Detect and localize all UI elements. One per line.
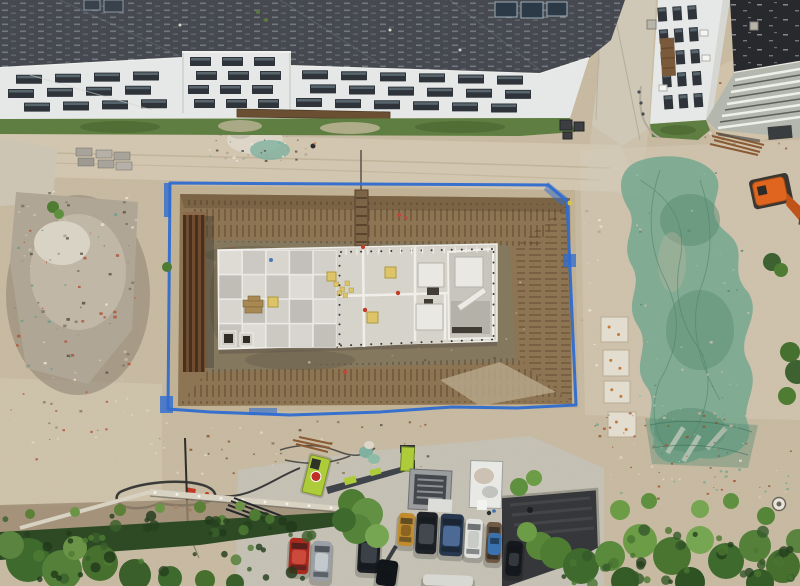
speckle — [24, 255, 26, 257]
speckle — [424, 424, 426, 426]
speckle — [99, 360, 100, 361]
speckle — [21, 205, 24, 208]
speckle — [722, 415, 724, 417]
speckle — [29, 230, 31, 232]
speckle — [123, 201, 126, 203]
speckle — [681, 315, 682, 316]
speckle — [759, 487, 760, 488]
tree-canopy — [774, 263, 788, 277]
speckle — [609, 427, 611, 429]
speckle — [592, 261, 594, 263]
speckle — [584, 223, 585, 224]
sheet-pile-shadow — [205, 216, 214, 368]
speckle — [79, 410, 82, 412]
speckle — [55, 410, 57, 412]
worker — [487, 511, 491, 515]
speckle — [788, 476, 790, 477]
speckle — [146, 410, 149, 412]
speckle — [420, 426, 421, 427]
speckle — [679, 478, 681, 480]
wall-post — [198, 495, 201, 498]
speckle — [265, 514, 275, 524]
speckle — [636, 225, 638, 227]
speckle — [582, 551, 593, 562]
speckle — [790, 451, 792, 453]
speckle — [753, 548, 758, 553]
speckle — [588, 309, 591, 311]
concrete-tile — [243, 251, 266, 275]
concrete-tile — [290, 275, 313, 299]
speckle — [43, 401, 46, 403]
speckle — [261, 547, 266, 552]
tree-canopy — [510, 478, 528, 496]
speckle — [74, 372, 76, 374]
speckle — [719, 82, 721, 84]
speckle — [31, 285, 34, 287]
speckle — [48, 423, 50, 425]
speckle — [190, 449, 193, 451]
speckle — [78, 286, 81, 288]
speckle — [226, 152, 229, 154]
speckle — [409, 421, 411, 423]
speckle — [86, 391, 88, 393]
speckle — [698, 412, 701, 414]
speckle — [392, 355, 394, 357]
tree-canopy — [332, 508, 356, 532]
speckle — [594, 344, 596, 345]
speckle — [451, 349, 453, 351]
speckle — [159, 438, 160, 439]
speckle — [41, 310, 45, 313]
speckle — [515, 312, 517, 314]
tree-canopy — [25, 509, 35, 519]
speckle — [662, 405, 664, 407]
speckle — [238, 525, 248, 535]
speckle — [785, 148, 787, 150]
speckle — [37, 577, 43, 583]
speckle — [715, 422, 718, 424]
concrete-tile — [313, 324, 336, 348]
speckle — [633, 443, 634, 444]
speckle — [778, 143, 780, 145]
speckle — [757, 490, 758, 491]
concrete-pad — [604, 381, 630, 403]
speckle — [786, 488, 788, 490]
speckle — [614, 462, 616, 464]
speckle — [634, 276, 635, 277]
speckle — [673, 419, 674, 420]
speckle — [680, 408, 682, 409]
speckle — [702, 354, 704, 355]
marker-flag — [568, 201, 573, 206]
concrete-tile — [266, 324, 289, 348]
speckle — [716, 535, 722, 541]
speckle — [693, 532, 698, 537]
speckle — [714, 442, 716, 443]
speckle — [85, 556, 90, 561]
speckle — [589, 339, 590, 340]
speckle — [745, 415, 747, 417]
wall-post — [330, 506, 333, 509]
speckle — [67, 204, 70, 206]
speckle — [774, 556, 785, 567]
speckle — [98, 236, 100, 237]
speckle — [713, 487, 714, 488]
speckle — [37, 302, 39, 304]
speckle — [299, 429, 302, 431]
speckle — [75, 191, 76, 192]
speckle — [704, 136, 706, 138]
speckle — [728, 542, 734, 548]
concrete-tile — [313, 251, 336, 275]
speckle — [282, 156, 284, 158]
speckle — [710, 341, 713, 343]
speckle — [125, 223, 128, 225]
speckle — [247, 154, 249, 155]
speckle — [300, 576, 305, 581]
speckle — [53, 191, 55, 193]
speckle — [644, 305, 646, 307]
tree-canopy — [155, 503, 165, 513]
speckle — [663, 417, 666, 419]
speckle — [81, 320, 84, 322]
speckle — [163, 447, 165, 449]
speckle — [720, 470, 723, 472]
speckle — [11, 410, 12, 411]
speckle — [730, 425, 733, 427]
speckle — [71, 354, 74, 357]
speckle — [66, 318, 70, 321]
speckle — [765, 428, 767, 430]
speckle — [374, 464, 375, 465]
speckle — [51, 368, 53, 370]
tree-canopy — [114, 504, 126, 516]
speckle — [640, 304, 642, 306]
speckle — [232, 246, 233, 247]
right-building — [637, 0, 800, 141]
speckle — [523, 329, 525, 331]
speckle — [738, 469, 741, 471]
speckle — [721, 371, 723, 372]
speckle — [80, 253, 83, 255]
speckle — [116, 254, 119, 257]
speckle — [49, 259, 51, 261]
speckle — [668, 579, 673, 584]
speckle — [729, 384, 731, 386]
speckle — [110, 514, 115, 519]
speckle — [44, 362, 47, 364]
speckle — [27, 206, 28, 207]
speckle — [295, 159, 297, 161]
speckle — [28, 249, 31, 252]
speckle — [589, 283, 590, 284]
speckle — [779, 546, 790, 557]
speckle — [127, 353, 130, 355]
speckle — [30, 266, 31, 267]
speckle — [264, 150, 266, 152]
yellow-pad — [385, 267, 396, 278]
speckle — [35, 316, 37, 318]
speckle — [307, 530, 317, 540]
speckle — [601, 346, 603, 348]
speckle — [82, 538, 88, 544]
speckle — [321, 439, 323, 441]
speckle — [671, 478, 673, 479]
speckle — [16, 344, 19, 346]
tree-canopy — [723, 493, 739, 509]
speckle — [123, 211, 126, 213]
tree-canopy — [686, 526, 714, 554]
speckle — [716, 489, 718, 491]
speckle — [297, 140, 299, 141]
speckle — [97, 430, 98, 431]
speckle — [658, 486, 661, 488]
speckle — [127, 261, 130, 264]
speckle — [17, 247, 20, 249]
speckle — [95, 437, 97, 439]
speckle — [261, 152, 263, 153]
speckle — [286, 136, 287, 137]
speckle — [756, 449, 758, 451]
speckle — [644, 576, 651, 583]
speckle — [653, 446, 655, 447]
concrete-pad — [601, 317, 628, 342]
speckle — [278, 517, 287, 526]
speckle — [65, 284, 67, 286]
speckle — [600, 226, 603, 228]
speckle — [245, 157, 246, 158]
concrete-tile — [243, 275, 266, 299]
speckle — [225, 158, 227, 160]
speckle — [286, 521, 298, 533]
speckle — [126, 398, 128, 400]
speckle — [686, 456, 687, 457]
speckle — [219, 529, 227, 537]
speckle — [106, 429, 108, 430]
speckle — [113, 311, 116, 314]
speckle — [562, 574, 567, 579]
speckle — [151, 443, 153, 445]
speckle — [260, 432, 263, 434]
speckle — [713, 413, 715, 415]
tree-canopy — [641, 493, 657, 509]
concrete-tile — [266, 251, 289, 275]
speckle — [717, 417, 719, 418]
speckle — [703, 426, 706, 428]
speckle — [684, 568, 690, 574]
wall-post — [308, 504, 311, 507]
main-building — [0, 0, 625, 139]
speckle — [572, 580, 577, 585]
speckle — [146, 511, 156, 521]
concrete-tile — [313, 300, 336, 324]
speckle — [703, 481, 706, 483]
speckle — [724, 419, 726, 420]
speckle — [18, 211, 20, 213]
speckle — [629, 413, 631, 415]
speckle — [732, 269, 735, 271]
speckle — [316, 421, 318, 423]
speckle — [51, 571, 59, 579]
speckle — [55, 219, 58, 222]
speckle — [662, 479, 664, 481]
aerial-construction-photo — [0, 0, 800, 586]
white-truck-partial — [421, 574, 476, 586]
speckle — [30, 253, 33, 255]
speckle — [24, 242, 25, 243]
speckle — [99, 535, 105, 541]
concrete-tile — [290, 324, 313, 348]
speckle — [719, 254, 721, 255]
speckle — [581, 319, 583, 321]
speckle — [88, 535, 94, 541]
speckle — [598, 231, 601, 233]
speckle — [27, 365, 30, 367]
speckle — [43, 261, 46, 264]
speckle — [131, 227, 134, 229]
speckle — [216, 140, 217, 141]
speckle — [342, 472, 345, 474]
sheet-pile-wall — [183, 212, 205, 372]
speckle — [263, 574, 270, 581]
speckle — [247, 567, 252, 572]
speckle — [128, 363, 131, 365]
speckle — [125, 197, 128, 199]
speckle — [718, 450, 719, 451]
speckle — [710, 467, 712, 469]
speckle — [739, 460, 742, 462]
speckle — [114, 213, 117, 216]
speckle — [64, 219, 65, 220]
speckle — [236, 160, 238, 162]
speckle — [295, 151, 298, 153]
speckle — [272, 442, 275, 444]
speckle — [404, 443, 405, 444]
speckle — [242, 158, 244, 160]
speckle — [653, 404, 656, 406]
utility-box — [647, 20, 656, 29]
speckle — [727, 452, 729, 453]
tree-canopy — [54, 209, 64, 219]
speckle — [589, 278, 592, 280]
speckle — [58, 253, 61, 255]
speckle — [608, 415, 609, 416]
speckle — [68, 538, 74, 544]
speckle — [83, 257, 86, 260]
speckle — [278, 141, 281, 143]
speckle — [675, 541, 685, 551]
speckle — [776, 470, 777, 471]
black-car-2 — [502, 540, 525, 581]
speckle — [610, 474, 611, 475]
speckle — [639, 395, 641, 397]
speckle — [25, 235, 27, 237]
speckle — [595, 425, 596, 426]
speckle — [665, 444, 668, 446]
speckle — [651, 466, 654, 468]
silver-car — [309, 540, 334, 586]
speckle — [593, 367, 594, 368]
speckle — [131, 282, 134, 284]
speckle — [122, 365, 125, 367]
foundation-slab — [218, 244, 497, 354]
speckle — [268, 526, 272, 530]
speckle — [597, 260, 599, 261]
concrete-tile — [219, 251, 242, 275]
speckle — [211, 427, 212, 428]
speckle — [620, 492, 622, 494]
speckle — [75, 321, 78, 323]
speckle — [276, 453, 277, 454]
speckle — [55, 427, 57, 429]
speckle — [286, 567, 298, 579]
speckle — [639, 229, 641, 231]
speckle — [691, 210, 693, 211]
speckle — [3, 516, 9, 522]
speckle — [159, 566, 170, 577]
speckle — [724, 428, 726, 429]
speckle — [100, 543, 108, 551]
speckle — [134, 297, 136, 298]
concrete-pad — [603, 350, 629, 376]
speckle — [673, 532, 681, 540]
speckle — [645, 425, 647, 427]
tree-canopy — [691, 500, 709, 518]
speckle — [736, 426, 738, 428]
speckle — [230, 142, 231, 143]
speckle — [104, 551, 116, 563]
speckle — [785, 491, 787, 492]
speckle — [90, 233, 91, 234]
speckle — [143, 523, 152, 532]
speckle — [177, 472, 179, 474]
concrete-pad — [608, 412, 636, 437]
speckle — [48, 321, 51, 324]
slope-striations — [184, 200, 566, 246]
speckle — [204, 454, 207, 456]
speckle — [659, 472, 660, 473]
speckle — [647, 341, 648, 342]
speckle — [606, 417, 607, 418]
concrete-tile — [219, 275, 242, 299]
speckle — [586, 210, 589, 212]
speckle — [636, 174, 639, 176]
speckle — [106, 401, 108, 403]
yellow-pad — [268, 297, 278, 307]
speckle — [633, 573, 644, 584]
speckle — [99, 312, 102, 315]
speckle — [638, 524, 650, 536]
speckle — [697, 421, 698, 422]
speckle — [275, 461, 277, 462]
speckle — [764, 491, 766, 493]
speckle — [135, 219, 138, 221]
speckle — [129, 288, 132, 290]
speckle — [612, 447, 613, 448]
speckle — [63, 235, 66, 238]
speckle — [721, 489, 723, 491]
speckle — [757, 561, 766, 570]
speckle — [361, 426, 363, 428]
speckle — [261, 148, 264, 150]
speckle — [210, 516, 221, 527]
speckle — [286, 139, 287, 140]
speckle — [193, 552, 197, 556]
speckle — [667, 425, 669, 427]
yellow-pad — [367, 312, 378, 323]
speckle — [595, 364, 598, 366]
tree-canopy — [162, 262, 172, 272]
